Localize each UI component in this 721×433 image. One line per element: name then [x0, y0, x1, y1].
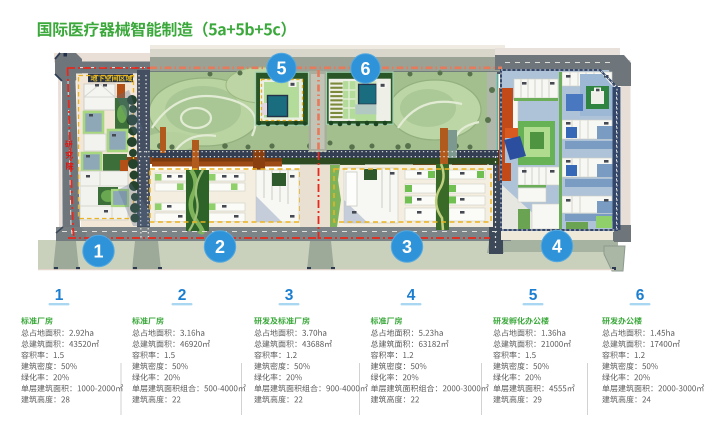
svg-text:2: 2	[178, 287, 187, 304]
svg-text:5: 5	[276, 59, 286, 79]
svg-text:1: 1	[93, 242, 103, 262]
svg-text:6: 6	[636, 287, 645, 304]
svg-text:1: 1	[55, 287, 64, 304]
svg-text:3: 3	[402, 237, 412, 257]
svg-text:3: 3	[285, 287, 294, 304]
svg-text:4: 4	[552, 237, 562, 257]
svg-text:6: 6	[360, 59, 370, 79]
svg-text:5: 5	[529, 287, 538, 304]
svg-text:4: 4	[407, 287, 416, 304]
svg-text:2: 2	[215, 237, 225, 257]
